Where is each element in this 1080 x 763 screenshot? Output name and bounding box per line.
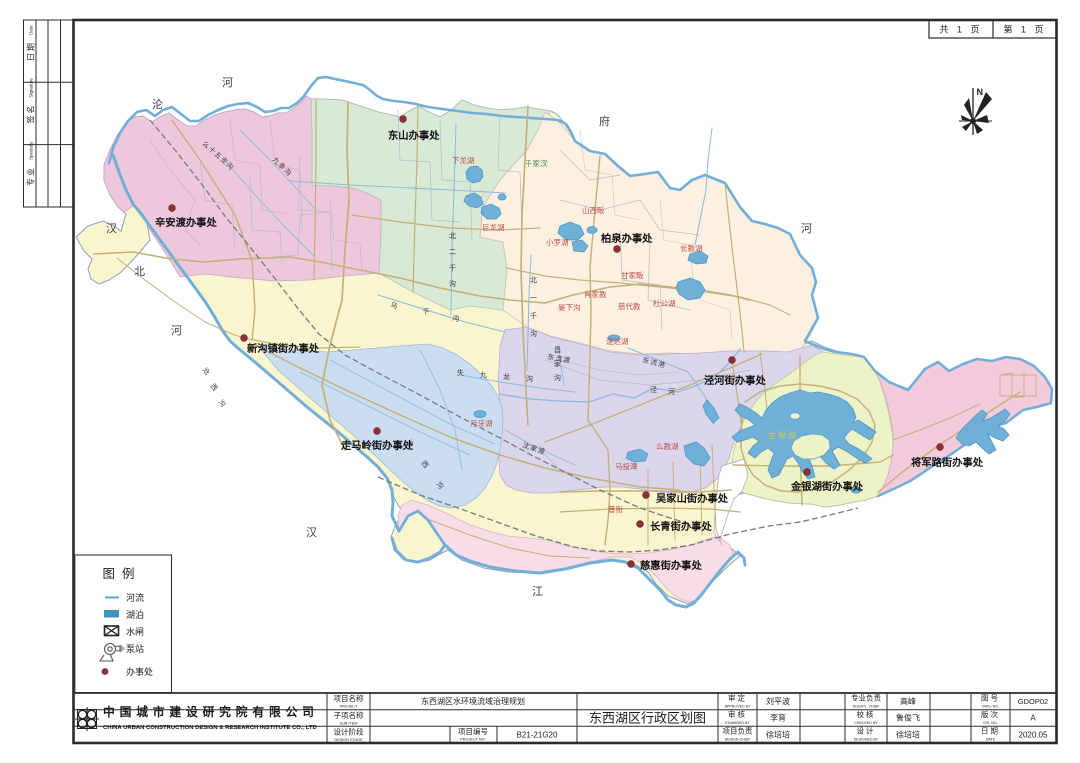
svg-text:北: 北 <box>134 265 145 278</box>
svg-text:水闸: 水闸 <box>126 626 144 637</box>
svg-text:九: 九 <box>480 370 488 379</box>
svg-text:CHINA URBAN CONSTRUCTION DESIG: CHINA URBAN CONSTRUCTION DESIGN & RESEAR… <box>103 725 317 731</box>
svg-text:下龙湖: 下龙湖 <box>452 155 475 165</box>
svg-text:设计: 设计 <box>857 726 876 736</box>
svg-text:李育: 李育 <box>770 713 786 723</box>
svg-text:慈代教: 慈代教 <box>618 301 641 311</box>
svg-text:泥达湖: 泥达湖 <box>606 336 629 346</box>
svg-text:河: 河 <box>222 76 233 89</box>
svg-text:PROJECT: PROJECT <box>340 705 358 709</box>
svg-text:沟: 沟 <box>530 329 538 338</box>
svg-text:N: N <box>977 87 984 97</box>
svg-text:河流: 河流 <box>126 592 144 603</box>
svg-text:审定: 审定 <box>728 693 747 703</box>
svg-text:CHECKED BY: CHECKED BY <box>854 721 878 725</box>
svg-text:吴家山街办事处: 吴家山街办事处 <box>656 492 729 505</box>
svg-text:APPROVED BY: APPROVED BY <box>725 705 751 709</box>
svg-text:河: 河 <box>801 222 812 235</box>
svg-text:中国城市建设研究院有限公司: 中国城市建设研究院有限公司 <box>103 705 319 719</box>
svg-text:校核: 校核 <box>857 709 876 719</box>
svg-text:沟: 沟 <box>449 279 457 288</box>
svg-text:项目负责: 项目负责 <box>723 726 753 736</box>
svg-text:将军路街办事处: 将军路街办事处 <box>911 456 984 469</box>
svg-text:EXAMINED BY: EXAMINED BY <box>725 721 750 725</box>
svg-text:千: 千 <box>530 311 538 320</box>
svg-text:日期: 日期 <box>27 41 36 61</box>
svg-text:沟: 沟 <box>526 374 534 383</box>
svg-text:Date: Date <box>29 25 34 35</box>
svg-text:第 1 页: 第 1 页 <box>1003 24 1046 35</box>
svg-text:泾河街办事处: 泾河街办事处 <box>704 374 766 387</box>
svg-text:辛安渡办事处: 辛安渡办事处 <box>155 216 217 229</box>
svg-text:专业: 专业 <box>26 166 36 186</box>
svg-text:图号: 图号 <box>981 694 1000 703</box>
svg-text:肖家教: 肖家教 <box>584 289 607 299</box>
svg-text:千家汊: 千家汊 <box>525 158 548 168</box>
svg-text:DISCIPL. CHIEF: DISCIPL. CHIEF <box>853 705 881 709</box>
svg-text:二: 二 <box>449 249 457 256</box>
svg-text:泾: 泾 <box>650 386 658 394</box>
svg-text:甘家畈: 甘家畈 <box>621 270 644 280</box>
svg-text:新沟镇街办事处: 新沟镇街办事处 <box>247 342 320 355</box>
svg-text:A: A <box>1030 714 1036 723</box>
svg-text:徐培培: 徐培培 <box>766 730 790 740</box>
svg-text:鲁俊飞: 鲁俊飞 <box>896 713 920 723</box>
svg-text:河: 河 <box>668 388 676 396</box>
svg-text:马投潭: 马投潭 <box>615 461 638 471</box>
svg-text:GDOP02: GDOP02 <box>1018 697 1048 706</box>
svg-text:SUB ITEM: SUB ITEM <box>340 722 358 726</box>
svg-text:泵站: 泵站 <box>126 643 144 654</box>
svg-text:府: 府 <box>599 114 610 128</box>
svg-text:PROJECT NO.: PROJECT NO. <box>460 738 485 742</box>
svg-text:图例: 图例 <box>102 567 141 581</box>
svg-text:Specialty: Specialty <box>29 141 34 160</box>
svg-text:高峰: 高峰 <box>900 696 916 706</box>
svg-text:东山办事处: 东山办事处 <box>388 129 440 142</box>
svg-text:慈惠街办事处: 慈惠街办事处 <box>640 559 702 572</box>
svg-text:刘平波: 刘平波 <box>766 696 790 706</box>
svg-text:昌: 昌 <box>554 346 562 354</box>
svg-text:江: 江 <box>532 585 543 598</box>
svg-text:长青街办事处: 长青街办事处 <box>650 520 712 533</box>
svg-text:北: 北 <box>530 276 538 284</box>
svg-text:失: 失 <box>457 368 465 377</box>
svg-text:DWG. NO.: DWG. NO. <box>982 705 999 709</box>
svg-text:ISS. NO.: ISS. NO. <box>983 721 997 725</box>
svg-text:专业负责: 专业负责 <box>851 693 881 703</box>
svg-text:金银湖街办事处: 金银湖街办事处 <box>790 480 864 493</box>
svg-text:一: 一 <box>530 295 538 302</box>
svg-text:设计阶段: 设计阶段 <box>334 727 364 737</box>
svg-text:金银湖: 金银湖 <box>768 430 798 440</box>
svg-text:日期: 日期 <box>981 727 1000 736</box>
svg-text:2020.05: 2020.05 <box>1019 731 1048 740</box>
svg-text:子项名称: 子项名称 <box>334 710 364 720</box>
svg-text:版次: 版次 <box>981 709 1000 719</box>
svg-text:东西湖区行政区划图: 东西湖区行政区划图 <box>589 711 706 726</box>
svg-text:徐培培: 徐培培 <box>896 730 920 740</box>
svg-text:Signature: Signature <box>29 78 34 98</box>
svg-text:东西湖区水环境流域治理规划: 东西湖区水环境流域治理规划 <box>421 696 525 706</box>
svg-text:千: 千 <box>449 263 457 272</box>
svg-text:普衔: 普衔 <box>608 504 623 514</box>
svg-text:小罗湖: 小罗湖 <box>546 238 569 247</box>
svg-text:晏下沟: 晏下沟 <box>558 302 581 312</box>
svg-text:长教湖: 长教湖 <box>680 243 703 253</box>
svg-text:DESIGN CHIEF: DESIGN CHIEF <box>725 738 751 742</box>
svg-text:沦: 沦 <box>152 97 163 111</box>
svg-text:审核: 审核 <box>728 709 747 719</box>
svg-text:山西畈: 山西畈 <box>582 205 605 215</box>
svg-text:DESIGN STAGE: DESIGN STAGE <box>334 738 363 742</box>
svg-text:办事处: 办事处 <box>126 666 153 677</box>
svg-text:巨龙湖: 巨龙湖 <box>482 222 505 232</box>
svg-text:湖泊: 湖泊 <box>126 610 144 620</box>
svg-text:么教湖: 么教湖 <box>656 441 679 451</box>
svg-text:项目编号: 项目编号 <box>458 726 488 736</box>
svg-text:龙: 龙 <box>503 372 511 381</box>
svg-text:项目名称: 项目名称 <box>334 693 364 703</box>
svg-text:DATE: DATE <box>986 738 996 742</box>
svg-text:B21-21G20: B21-21G20 <box>517 731 558 740</box>
svg-text:走马岭街办事处: 走马岭街办事处 <box>340 439 414 452</box>
svg-text:汉: 汉 <box>306 526 317 539</box>
svg-text:共 1 页: 共 1 页 <box>939 25 982 35</box>
svg-text:沟: 沟 <box>554 373 562 382</box>
svg-text:河: 河 <box>171 324 182 337</box>
svg-text:DESIGNED BY: DESIGNED BY <box>854 738 879 742</box>
svg-text:杜公湖: 杜公湖 <box>653 298 676 308</box>
svg-text:北: 北 <box>449 232 457 240</box>
svg-text:签名: 签名 <box>26 104 36 124</box>
svg-text:汉: 汉 <box>106 222 117 235</box>
svg-text:柏泉办事处: 柏泉办事处 <box>601 232 653 245</box>
svg-text:月牙湖: 月牙湖 <box>470 419 493 428</box>
